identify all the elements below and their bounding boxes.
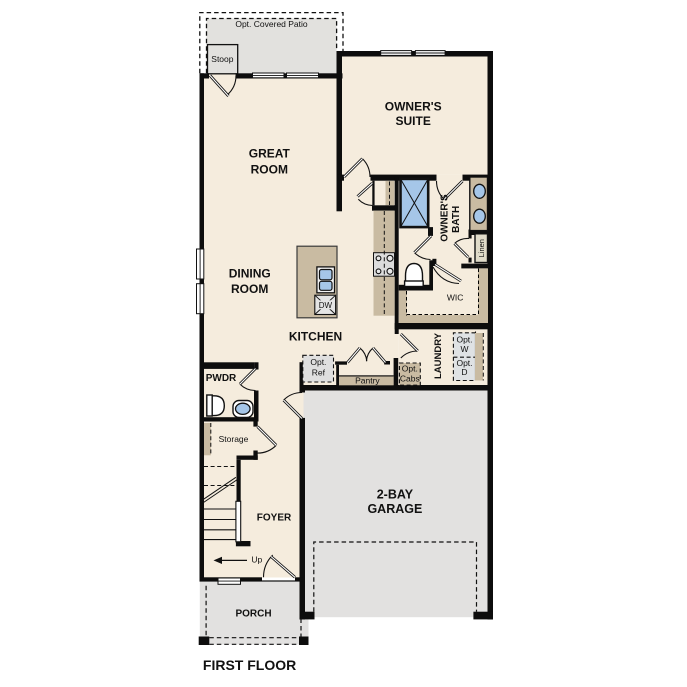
svg-text:SUITE: SUITE <box>396 114 431 128</box>
svg-text:FOYER: FOYER <box>257 513 292 524</box>
svg-text:Linen: Linen <box>477 239 486 257</box>
svg-text:D: D <box>461 367 467 377</box>
svg-text:Opt.: Opt. <box>402 364 418 374</box>
svg-text:LAUNDRY: LAUNDRY <box>433 332 444 379</box>
svg-text:DINING: DINING <box>229 266 271 280</box>
svg-text:DW: DW <box>319 301 333 310</box>
svg-text:Storage: Storage <box>219 434 249 444</box>
svg-text:WIC: WIC <box>447 293 464 303</box>
svg-text:OWNER'S: OWNER'S <box>439 194 450 242</box>
svg-text:Cabs: Cabs <box>400 374 420 384</box>
svg-text:Ref: Ref <box>312 368 326 378</box>
svg-text:GREAT: GREAT <box>249 147 291 161</box>
svg-text:Opt. Covered Patio: Opt. Covered Patio <box>235 19 308 29</box>
svg-text:PORCH: PORCH <box>235 608 271 619</box>
svg-text:OWNER'S: OWNER'S <box>385 99 442 113</box>
svg-text:2-BAY: 2-BAY <box>377 487 414 501</box>
svg-text:Stoop: Stoop <box>211 54 233 64</box>
svg-text:PWDR: PWDR <box>206 373 237 384</box>
svg-text:ROOM: ROOM <box>251 162 288 176</box>
svg-text:Up: Up <box>251 554 262 564</box>
svg-text:KITCHEN: KITCHEN <box>289 330 342 344</box>
svg-text:BATH: BATH <box>451 206 462 233</box>
svg-text:W: W <box>460 344 468 354</box>
svg-text:Opt.: Opt. <box>310 357 326 367</box>
svg-text:ROOM: ROOM <box>231 282 268 296</box>
svg-text:GARAGE: GARAGE <box>367 502 422 516</box>
svg-text:FIRST FLOOR: FIRST FLOOR <box>203 657 296 673</box>
svg-text:Pantry: Pantry <box>355 375 380 385</box>
